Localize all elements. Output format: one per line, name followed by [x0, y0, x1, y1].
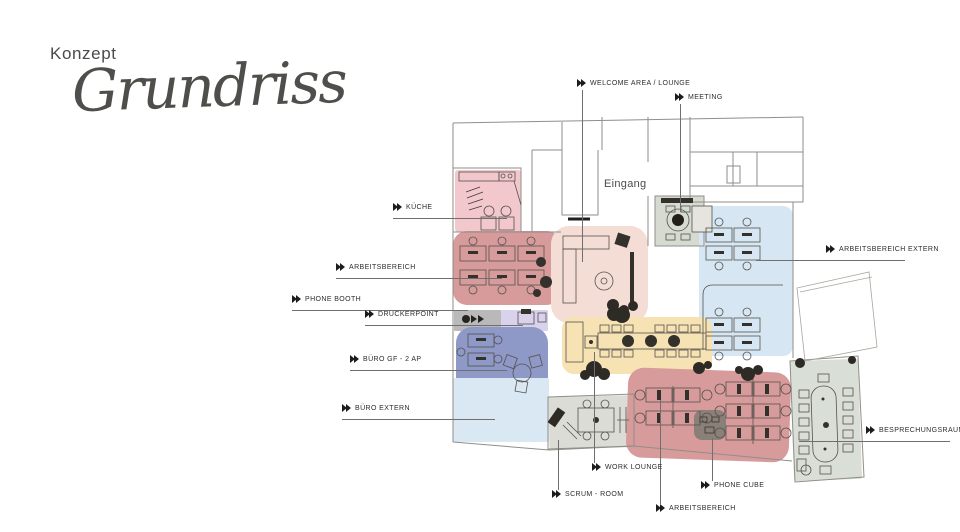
leader-line-phone-cube: [712, 438, 713, 481]
leader-line-arbeitsbereich-extern: [756, 260, 905, 261]
area-label-meeting: MEETING: [675, 93, 723, 101]
leader-line-buero-gf: [350, 370, 507, 371]
fast-forward-icon: [342, 404, 350, 412]
leader-line-welcome-area: [582, 90, 583, 262]
region-besprechungsraum: [790, 359, 862, 481]
fast-forward-icon: [336, 263, 344, 271]
region-phone-cube: [694, 410, 726, 440]
area-label-text: ARBEITSBEREICH: [349, 264, 416, 271]
leader-line-buero-extern: [342, 419, 495, 420]
area-label-text: ARBEITSBEREICH EXTERN: [839, 246, 939, 253]
entrance-label: Eingang: [604, 178, 646, 190]
area-label-buero-extern: BÜRO EXTERN: [342, 404, 410, 412]
area-label-arbeitsbereich-extern: ARBEITSBEREICH EXTERN: [826, 245, 939, 253]
leader-line-work-lounge: [594, 352, 595, 463]
area-label-text: SCRUM - ROOM: [565, 491, 623, 498]
area-label-text: MEETING: [688, 94, 723, 101]
leader-line-arbeitsbereich-1: [336, 278, 502, 279]
area-label-kueche: KÜCHE: [393, 203, 433, 211]
fast-forward-icon: [656, 504, 664, 512]
region-scrum-room: [549, 395, 635, 448]
area-label-text: DRUCKERPOINT: [378, 311, 439, 318]
region-kueche: [455, 170, 521, 232]
leader-line-kueche: [393, 218, 507, 219]
region-arbeitsbereich-extern: [699, 206, 793, 356]
area-label-druckerpoint: DRUCKERPOINT: [365, 310, 439, 318]
area-label-arbeitsbereich-1: ARBEITSBEREICH: [336, 263, 416, 271]
area-label-text: ARBEITSBEREICH: [669, 505, 736, 512]
area-label-buero-gf: BÜRO GF - 2 AP: [350, 355, 422, 363]
leader-line-scrum-room: [558, 440, 559, 490]
region-arbeitsbereich-1: [453, 231, 561, 305]
region-buero-extern: [453, 378, 549, 442]
area-label-text: BÜRO GF - 2 AP: [363, 356, 422, 363]
region-welcome-lounge: [551, 226, 648, 323]
area-label-text: BESPRECHUNGSRAUM: [879, 427, 960, 434]
region-work-lounge: [562, 317, 712, 374]
fast-forward-icon: [577, 79, 585, 87]
fast-forward-icon: [675, 93, 683, 101]
area-label-phone-cube: PHONE CUBE: [701, 481, 764, 489]
leader-line-meeting: [680, 104, 681, 212]
area-label-text: BÜRO EXTERN: [355, 405, 410, 412]
fast-forward-icon: [365, 310, 373, 318]
area-label-text: WELCOME AREA / LOUNGE: [590, 80, 690, 87]
title-script: Grundriss: [71, 47, 373, 125]
leader-line-besprechungsraum: [799, 441, 950, 442]
fast-forward-icon: [292, 295, 300, 303]
fast-forward-icon: [826, 245, 834, 253]
area-label-besprechungsraum: BESPRECHUNGSRAUM: [866, 426, 960, 434]
fast-forward-icon: [350, 355, 358, 363]
area-label-text: PHONE BOOTH: [305, 296, 361, 303]
leader-line-druckerpoint: [365, 325, 523, 326]
area-label-phone-booth: PHONE BOOTH: [292, 295, 361, 303]
area-label-text: WORK LOUNGE: [605, 464, 663, 471]
area-label-text: KÜCHE: [406, 204, 433, 211]
fast-forward-icon: [701, 481, 709, 489]
fast-forward-icon: [393, 203, 401, 211]
area-label-welcome-area: WELCOME AREA / LOUNGE: [577, 79, 690, 87]
fast-forward-icon: [552, 490, 560, 498]
fast-forward-icon: [866, 426, 874, 434]
area-label-work-lounge: WORK LOUNGE: [592, 463, 663, 471]
leader-line-arbeitsbereich-2: [660, 400, 661, 504]
area-label-scrum-room: SCRUM - ROOM: [552, 490, 623, 498]
area-label-arbeitsbereich-2: ARBEITSBEREICH: [656, 504, 736, 512]
area-label-text: PHONE CUBE: [714, 482, 764, 489]
fast-forward-icon: [592, 463, 600, 471]
